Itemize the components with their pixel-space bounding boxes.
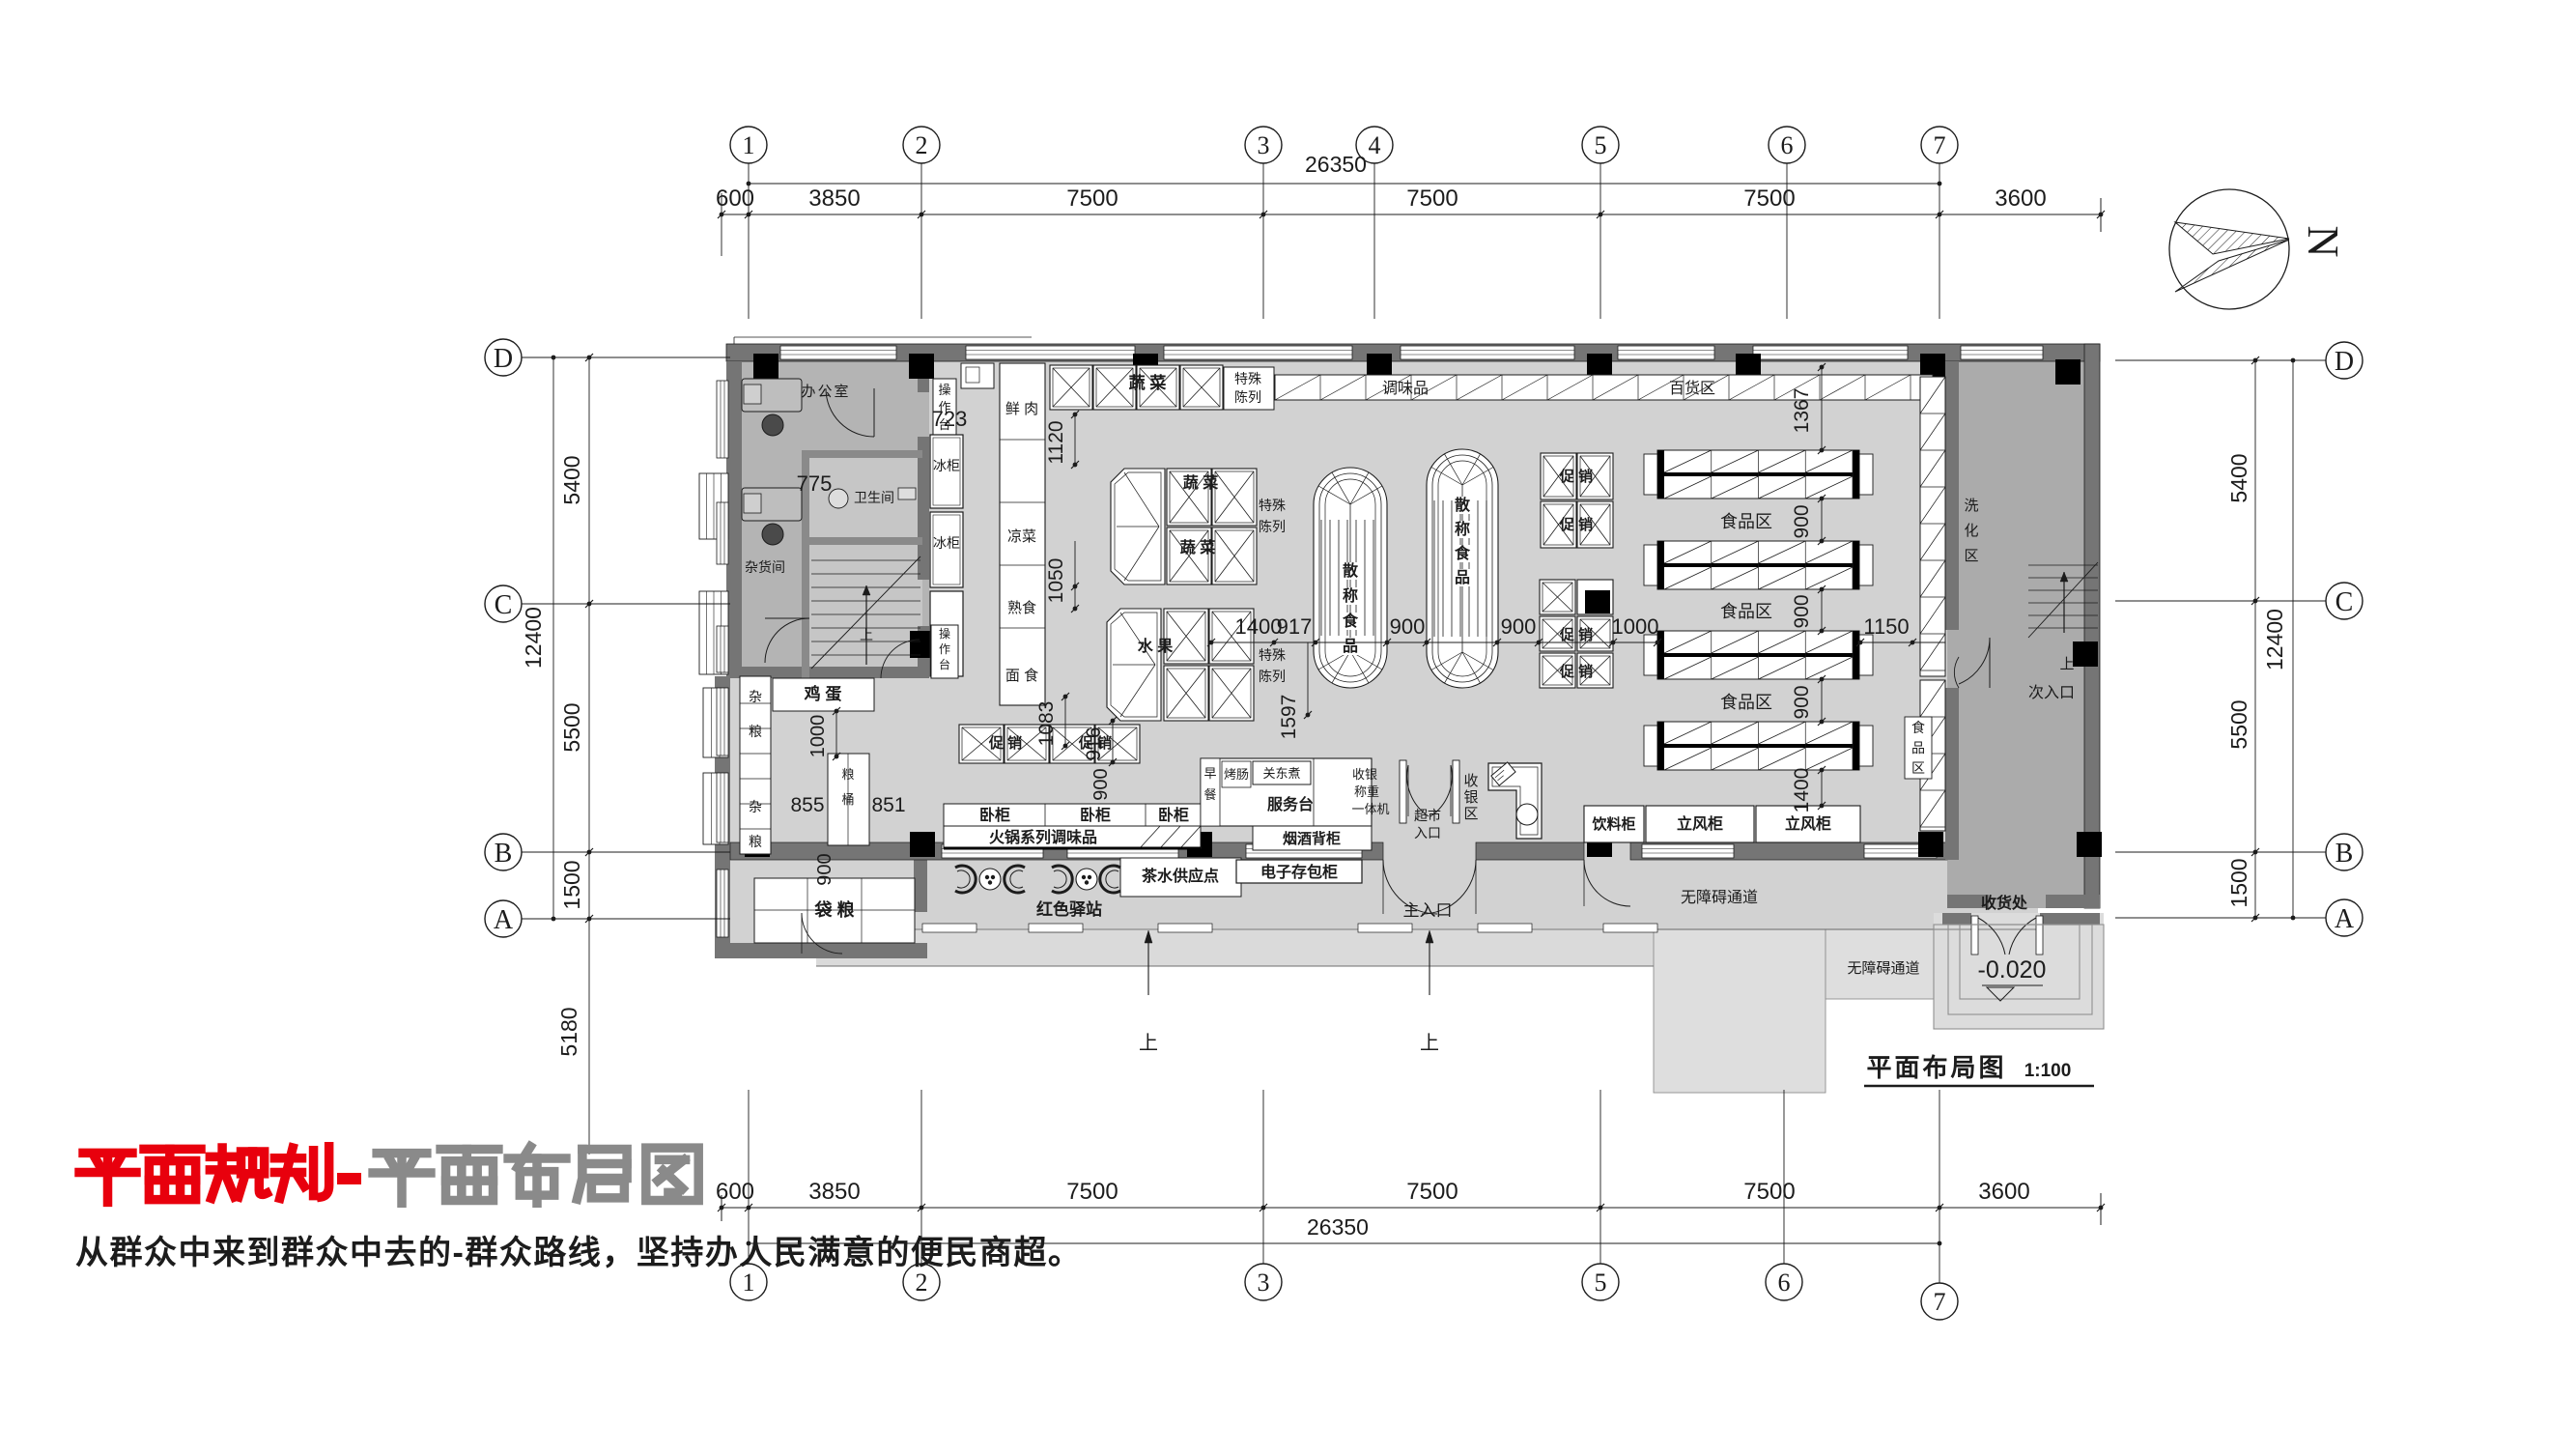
svg-text:2: 2 (916, 131, 928, 159)
svg-text:冰柜: 冰柜 (933, 458, 960, 473)
svg-text:上: 上 (1420, 1032, 1439, 1054)
svg-text:主入口: 主入口 (1403, 901, 1453, 920)
svg-text:1150: 1150 (1863, 614, 1909, 639)
svg-text:900: 900 (1791, 504, 1813, 538)
svg-text:4: 4 (1369, 131, 1381, 159)
svg-text:入口: 入口 (1414, 825, 1441, 841)
svg-text:鸡 蛋: 鸡 蛋 (804, 684, 842, 703)
svg-text:特殊: 特殊 (1234, 371, 1261, 386)
svg-text:5180: 5180 (556, 1007, 581, 1056)
svg-text:食品区: 食品区 (1720, 512, 1772, 531)
svg-text:促 销: 促 销 (1559, 468, 1593, 485)
svg-text:散: 散 (1343, 561, 1359, 580)
svg-text:900: 900 (814, 853, 835, 885)
svg-text:900: 900 (1791, 594, 1813, 628)
svg-text:无障碍通道: 无障碍通道 (1681, 889, 1758, 906)
svg-text:食: 食 (1911, 720, 1925, 735)
svg-text:775: 775 (797, 471, 833, 496)
svg-text:作: 作 (939, 642, 950, 656)
svg-text:1000: 1000 (1612, 614, 1659, 639)
svg-text:立风柜: 立风柜 (1785, 814, 1831, 833)
svg-text:粮: 粮 (841, 767, 854, 782)
svg-text:2: 2 (916, 1269, 928, 1297)
svg-text:促 销: 促 销 (1559, 626, 1593, 643)
svg-text:食: 食 (1342, 612, 1359, 630)
svg-text:特殊: 特殊 (1259, 498, 1286, 513)
svg-text:3600: 3600 (1995, 185, 2046, 212)
svg-text:电子存包柜: 电子存包柜 (1260, 863, 1338, 881)
svg-text:促 销: 促 销 (988, 734, 1022, 752)
svg-text:D: D (2335, 347, 2354, 377)
svg-text:杂货间: 杂货间 (745, 559, 785, 575)
svg-text:1:100: 1:100 (2024, 1061, 2072, 1081)
svg-text:红色驿站: 红色驿站 (1036, 899, 1102, 919)
svg-text:1050: 1050 (1045, 558, 1067, 604)
svg-text:银: 银 (1463, 789, 1478, 806)
svg-text:区: 区 (1964, 548, 1978, 564)
svg-text:1597: 1597 (1278, 695, 1300, 740)
svg-text:熟食: 熟食 (1007, 600, 1036, 616)
svg-text:区: 区 (1463, 806, 1478, 822)
svg-text:食: 食 (1454, 544, 1471, 562)
svg-text:D: D (494, 344, 513, 374)
svg-text:散: 散 (1455, 496, 1471, 514)
svg-text:3: 3 (1258, 131, 1270, 159)
svg-text:称: 称 (1455, 520, 1470, 538)
svg-text:特殊: 特殊 (1259, 647, 1286, 663)
svg-text:火锅系列调味品: 火锅系列调味品 (989, 828, 1097, 846)
svg-text:600: 600 (716, 1179, 754, 1205)
svg-text:1400: 1400 (1791, 768, 1813, 813)
svg-text:食品区: 食品区 (1720, 693, 1772, 712)
svg-text:N: N (2299, 225, 2348, 257)
svg-text:6: 6 (1778, 1269, 1791, 1297)
svg-text:1400: 1400 (1235, 614, 1283, 639)
svg-text:卧柜: 卧柜 (979, 806, 1010, 824)
svg-text:12400: 12400 (521, 607, 546, 669)
svg-text:立风柜: 立风柜 (1677, 814, 1723, 833)
svg-text:操: 操 (938, 383, 950, 397)
svg-text:3: 3 (1258, 1269, 1270, 1297)
svg-text:卫生间: 卫生间 (854, 490, 894, 505)
svg-text:6: 6 (1781, 131, 1794, 159)
svg-text:蔬 菜: 蔬 菜 (1129, 374, 1168, 392)
svg-text:1000: 1000 (807, 715, 829, 758)
svg-text:C: C (495, 590, 513, 620)
svg-text:蔬 菜: 蔬 菜 (1183, 473, 1218, 492)
svg-text:A: A (494, 905, 514, 935)
svg-text:5400: 5400 (559, 455, 584, 504)
svg-text:次入口: 次入口 (2028, 684, 2075, 701)
svg-text:26350: 26350 (1307, 1214, 1369, 1240)
svg-text:称重: 称重 (1354, 784, 1379, 799)
svg-text:7500: 7500 (1066, 1179, 1118, 1205)
svg-text:收银: 收银 (1352, 767, 1377, 782)
svg-text:723: 723 (932, 407, 968, 431)
svg-text:茶水供应点: 茶水供应点 (1141, 867, 1219, 885)
svg-text:调味品: 调味品 (1382, 380, 1429, 397)
svg-text:鲜 肉: 鲜 肉 (1005, 401, 1038, 417)
svg-text:-0.020: -0.020 (1978, 956, 2047, 984)
svg-text:916: 916 (1083, 727, 1105, 760)
svg-text:917: 917 (1277, 614, 1313, 639)
svg-text:袋 粮: 袋 粮 (813, 899, 854, 920)
svg-text:3600: 3600 (1978, 1179, 2029, 1205)
svg-text:卧柜: 卧柜 (1080, 806, 1111, 824)
svg-text:1083: 1083 (1035, 701, 1058, 747)
svg-text:C: C (2335, 587, 2354, 617)
svg-text:900: 900 (1791, 685, 1813, 719)
svg-text:12400: 12400 (2262, 609, 2287, 670)
svg-text:900: 900 (1390, 614, 1426, 639)
svg-text:5: 5 (1595, 131, 1607, 159)
svg-text:26350: 26350 (1305, 152, 1367, 177)
svg-text:食品区: 食品区 (1720, 602, 1772, 621)
svg-text:陈列: 陈列 (1259, 669, 1286, 684)
svg-text:促 销: 促 销 (1559, 516, 1593, 533)
svg-text:上: 上 (1139, 1032, 1158, 1054)
svg-text:促 销: 促 销 (1559, 663, 1593, 680)
svg-text:面 食: 面 食 (1005, 668, 1038, 684)
svg-text:平面布局图: 平面布局图 (1866, 1053, 2006, 1082)
svg-text:操: 操 (939, 626, 950, 641)
svg-text:B: B (2335, 839, 2354, 869)
svg-text:品: 品 (1455, 569, 1470, 586)
svg-text:上: 上 (860, 627, 873, 642)
svg-text:7500: 7500 (1406, 185, 1458, 212)
svg-text:品: 品 (1343, 638, 1358, 655)
svg-text:7: 7 (1934, 131, 1946, 159)
svg-text:桶: 桶 (841, 792, 854, 807)
svg-text:900: 900 (1090, 768, 1112, 800)
svg-text:1: 1 (743, 131, 755, 159)
svg-text:900: 900 (1501, 614, 1537, 639)
svg-text:凉菜: 凉菜 (1007, 528, 1036, 545)
svg-text:早: 早 (1203, 766, 1216, 781)
svg-text:冰柜: 冰柜 (933, 535, 960, 551)
svg-text:化: 化 (1964, 523, 1978, 539)
svg-text:5500: 5500 (2226, 699, 2251, 749)
svg-text:3850: 3850 (808, 185, 860, 212)
svg-text:百货区: 百货区 (1669, 380, 1715, 397)
svg-text:杂: 杂 (749, 689, 762, 704)
svg-text:5400: 5400 (2226, 453, 2251, 502)
svg-text:陈列: 陈列 (1234, 389, 1261, 405)
svg-text:饮料柜: 饮料柜 (1591, 815, 1635, 833)
svg-text:1367: 1367 (1791, 388, 1813, 434)
svg-text:1500: 1500 (559, 860, 584, 909)
svg-text:烟酒背柜: 烟酒背柜 (1283, 830, 1341, 847)
svg-text:从群众中来到群众中去的-群众路线，坚持办人民满意的便民商超。: 从群众中来到群众中去的-群众路线，坚持办人民满意的便民商超。 (75, 1235, 1082, 1271)
svg-text:粮: 粮 (749, 834, 762, 849)
svg-text:称: 称 (1343, 586, 1358, 605)
svg-text:烤肠: 烤肠 (1224, 767, 1249, 782)
svg-text:收货处: 收货处 (1981, 894, 2028, 912)
svg-text:蔬 菜: 蔬 菜 (1180, 538, 1215, 556)
svg-text:超市: 超市 (1414, 808, 1441, 823)
svg-text:7500: 7500 (1743, 1179, 1795, 1205)
svg-text:杂: 杂 (749, 799, 762, 814)
svg-text:1: 1 (743, 1269, 755, 1297)
svg-text:7500: 7500 (1743, 185, 1795, 212)
svg-text:服务台: 服务台 (1267, 795, 1314, 813)
svg-text:3850: 3850 (808, 1179, 860, 1205)
svg-text:一体机: 一体机 (1351, 802, 1389, 816)
svg-text:851: 851 (871, 794, 905, 816)
svg-text:上: 上 (2059, 656, 2074, 672)
svg-text:收: 收 (1463, 773, 1478, 789)
svg-text:B: B (495, 839, 513, 869)
svg-text:1120: 1120 (1045, 420, 1067, 464)
svg-text:粮: 粮 (749, 724, 762, 739)
svg-text:区: 区 (1911, 760, 1925, 776)
svg-text:5500: 5500 (559, 702, 584, 752)
svg-text:台: 台 (939, 657, 950, 671)
svg-text:7500: 7500 (1066, 185, 1118, 212)
svg-text:卧柜: 卧柜 (1158, 806, 1189, 824)
svg-text:855: 855 (790, 794, 824, 816)
svg-text:7: 7 (1934, 1288, 1946, 1316)
svg-text:餐: 餐 (1203, 787, 1216, 802)
svg-text:5: 5 (1595, 1269, 1607, 1297)
svg-text:7500: 7500 (1406, 1179, 1458, 1205)
svg-text:关东煮: 关东煮 (1262, 766, 1300, 781)
svg-text:水 果: 水 果 (1138, 637, 1173, 655)
svg-text:无障碍通道: 无障碍通道 (1847, 959, 1919, 977)
svg-text:品: 品 (1911, 740, 1925, 756)
svg-text:A: A (2335, 904, 2355, 934)
svg-text:陈列: 陈列 (1259, 519, 1286, 534)
svg-text:洗: 洗 (1964, 498, 1978, 514)
svg-text:600: 600 (716, 185, 754, 212)
svg-text:1500: 1500 (2226, 858, 2251, 907)
